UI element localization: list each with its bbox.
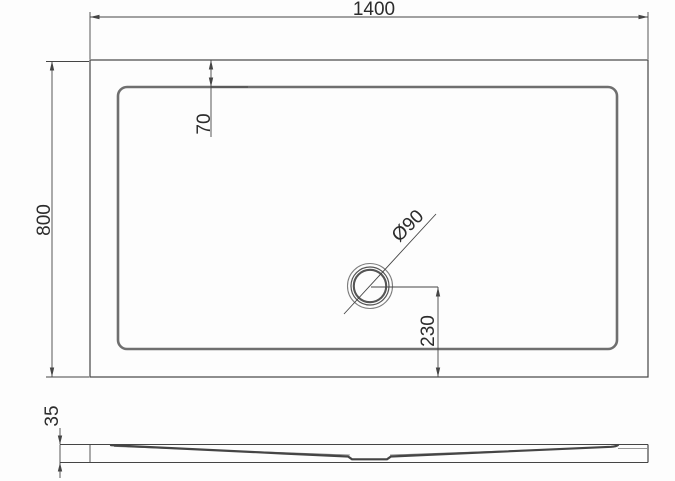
side-basin-slope [111, 445, 618, 459]
drain-diameter-label: Ø90 [388, 206, 428, 246]
dim-arrow-icon [436, 368, 440, 378]
dim-arrow-icon [58, 463, 62, 472]
side-view [60, 445, 648, 463]
tray-outer-edge [90, 60, 648, 377]
dim-arrow-icon [58, 436, 62, 445]
dim-arrow-icon [90, 15, 100, 19]
dim-tray-height: 35 [42, 405, 63, 478]
dim-rim-inset-label: 70 [194, 113, 215, 134]
dim-drain-offset-label: 230 [418, 315, 439, 347]
dim-arrow-icon [436, 287, 440, 297]
dim-arrow-icon [639, 15, 649, 19]
dim-tray-height-label: 35 [42, 405, 63, 426]
dim-width-label: 1400 [353, 0, 395, 20]
dim-arrow-icon [50, 61, 54, 71]
technical-drawing-canvas: 1400 800 70 Ø90 230 [0, 0, 675, 481]
dim-overall-width: 1400 [90, 0, 648, 59]
dim-arrow-icon [50, 368, 54, 378]
dim-depth-label: 800 [34, 204, 55, 236]
dim-arrow-icon [209, 60, 213, 70]
dim-overall-depth: 800 [34, 61, 89, 377]
shower-tray-drawing: 1400 800 70 Ø90 230 [0, 0, 675, 481]
dim-arrow-icon [209, 78, 213, 88]
top-view [90, 60, 648, 377]
tray-inner-rim [118, 87, 617, 349]
dim-rim-inset: 70 [194, 60, 248, 137]
